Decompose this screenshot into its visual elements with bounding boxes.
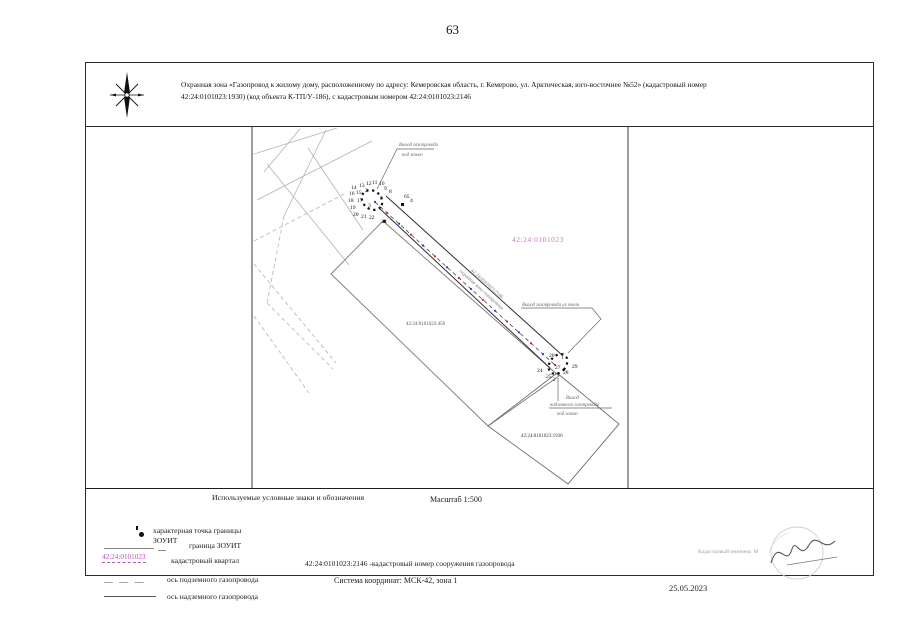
legend-item4-label: ось подземного газопровода xyxy=(167,575,258,584)
structure-cadastral-number-desc: -кадастровый номер сооружения газопровод… xyxy=(369,559,514,568)
point-number: 16 xyxy=(349,191,355,197)
zouit-border-symbol xyxy=(104,548,154,549)
axis-tick xyxy=(506,320,508,322)
structure-cadastral-number-value: 42:24:0101023:2146 xyxy=(305,559,368,568)
axis-tick xyxy=(398,223,400,225)
callout-bottom-text3: под землю xyxy=(557,412,578,417)
point-number: 2 xyxy=(553,377,556,383)
pipeline-inline-label: 42:24:0101023:2146 охранная зона газопро… xyxy=(458,263,510,311)
characteristic-point-symbol xyxy=(139,532,144,537)
point-number: 17 xyxy=(357,198,363,204)
zouit-border-symbol-dash xyxy=(158,550,166,551)
pipeline-axis xyxy=(375,202,555,365)
axis-tick xyxy=(410,234,412,236)
stamp-and-signature xyxy=(729,517,859,595)
legend-item3-label: кадастровый квартал xyxy=(171,556,239,565)
point-symbol-tick xyxy=(136,526,138,530)
point-number: 22 xyxy=(369,215,375,221)
callout-top-text1: Выход газопровода xyxy=(399,143,439,148)
callout-bottom-text1: Выход xyxy=(566,396,580,401)
axis-tick xyxy=(458,277,460,279)
page-number: 63 xyxy=(0,22,905,38)
point-number: 3 xyxy=(368,203,371,209)
parcel-1930-boundary xyxy=(488,373,619,484)
boundary-point-marker xyxy=(401,203,404,206)
callout-top-text2: под землю xyxy=(402,153,423,158)
point-number: 2 xyxy=(365,188,368,194)
legend: Используемые условные знаки и обозначени… xyxy=(86,488,873,576)
point-number: 19 xyxy=(350,205,356,211)
point-number: 9 xyxy=(384,186,387,192)
document-page: 63 Охранная зона «Газопровод к жилому до… xyxy=(0,0,905,640)
axis-tick xyxy=(374,201,376,203)
point-number: 26 xyxy=(549,353,555,359)
map-scale: Масштаб 1:500 xyxy=(430,495,482,504)
point-number: 29 xyxy=(572,364,578,370)
point-number: 23 xyxy=(381,219,387,225)
point-number: 12 xyxy=(366,181,372,187)
cadastral-quarter-label: 42:24:0101023 xyxy=(512,235,564,244)
axis-tick xyxy=(518,331,520,333)
axis-tick xyxy=(386,212,388,214)
legend-item2-label: граница ЗОУИТ xyxy=(189,541,241,550)
cadastral-quarter-symbol: 42:24:0101023 xyxy=(102,553,146,563)
axis-tick xyxy=(470,288,472,290)
point-number: 1 xyxy=(561,355,564,361)
axis-tick xyxy=(434,255,436,257)
road-network xyxy=(254,128,372,393)
point-number: 20 xyxy=(353,212,359,218)
point-number: 11 xyxy=(372,180,378,186)
signature-stroke xyxy=(771,540,835,563)
point-number: 65 xyxy=(404,194,410,200)
callout-bottom-text2: надземного газопровода xyxy=(550,403,600,408)
legend-item1-line1: характерная точка границы xyxy=(153,526,241,535)
coordinate-system: Система координат: МСК-42, зона 1 xyxy=(334,576,457,585)
point-number: 24 xyxy=(537,368,543,374)
date: 25.05.2023 xyxy=(669,583,707,593)
underground-axis-symbol: — — — xyxy=(104,577,146,587)
point-number-labels: 1413121110981615271817193202122654232612… xyxy=(348,180,578,383)
point-number: 21 xyxy=(361,214,367,220)
cadastral-map: Выход газопровода под землю Выход газопр… xyxy=(86,127,873,488)
point-number: 18 xyxy=(348,198,354,204)
axis-tick xyxy=(422,244,424,246)
point-number: 15 xyxy=(356,190,362,196)
point-number: 28 xyxy=(563,370,569,376)
axis-tick xyxy=(530,342,532,344)
axis-tick xyxy=(482,299,484,301)
point-number: 4 xyxy=(410,198,413,204)
plan-sheet: Охранная зона «Газопровод к жилому дому,… xyxy=(85,62,874,576)
point-number: 13 xyxy=(359,183,365,189)
axis-tick xyxy=(542,353,544,355)
callout-bottom: Выход надземного газопровода под землю xyxy=(549,378,612,417)
callout-right-text: Выход газопровода из земли xyxy=(522,303,580,308)
structure-cadastral-number: 42:24:0101023:2146 -кадастровый номер со… xyxy=(305,559,515,568)
plan-description-line2: 42:24:0101023:1930) (код объекта К-ТП/У-… xyxy=(181,91,761,103)
axis-tick xyxy=(446,266,448,268)
map-area: Выход газопровода под землю Выход газопр… xyxy=(86,127,873,488)
point-number: 8 xyxy=(389,189,392,195)
axis-tick xyxy=(494,310,496,312)
point-number: 27 xyxy=(555,365,561,371)
callout-top: Выход газопровода под землю xyxy=(377,143,439,189)
plan-header: Охранная зона «Газопровод к жилому дому,… xyxy=(86,63,873,127)
compass-rose-icon xyxy=(108,71,146,119)
plan-description: Охранная зона «Газопровод к жилому дому,… xyxy=(181,79,761,103)
aboveground-axis-symbol xyxy=(104,596,156,597)
parcel-1930-label: 42:24:0101023:1930 xyxy=(521,434,563,439)
parcel-450-label: 42:24:0101023:450 xyxy=(406,322,446,327)
point-number: 25 xyxy=(546,374,552,380)
plan-description-line1: Охранная зона «Газопровод к жилому дому,… xyxy=(181,79,761,91)
legend-item1-line2: ЗОУИТ xyxy=(153,536,177,545)
legend-item5-label: ось надземного газопровода xyxy=(167,592,258,601)
point-number: 7 xyxy=(380,196,383,202)
